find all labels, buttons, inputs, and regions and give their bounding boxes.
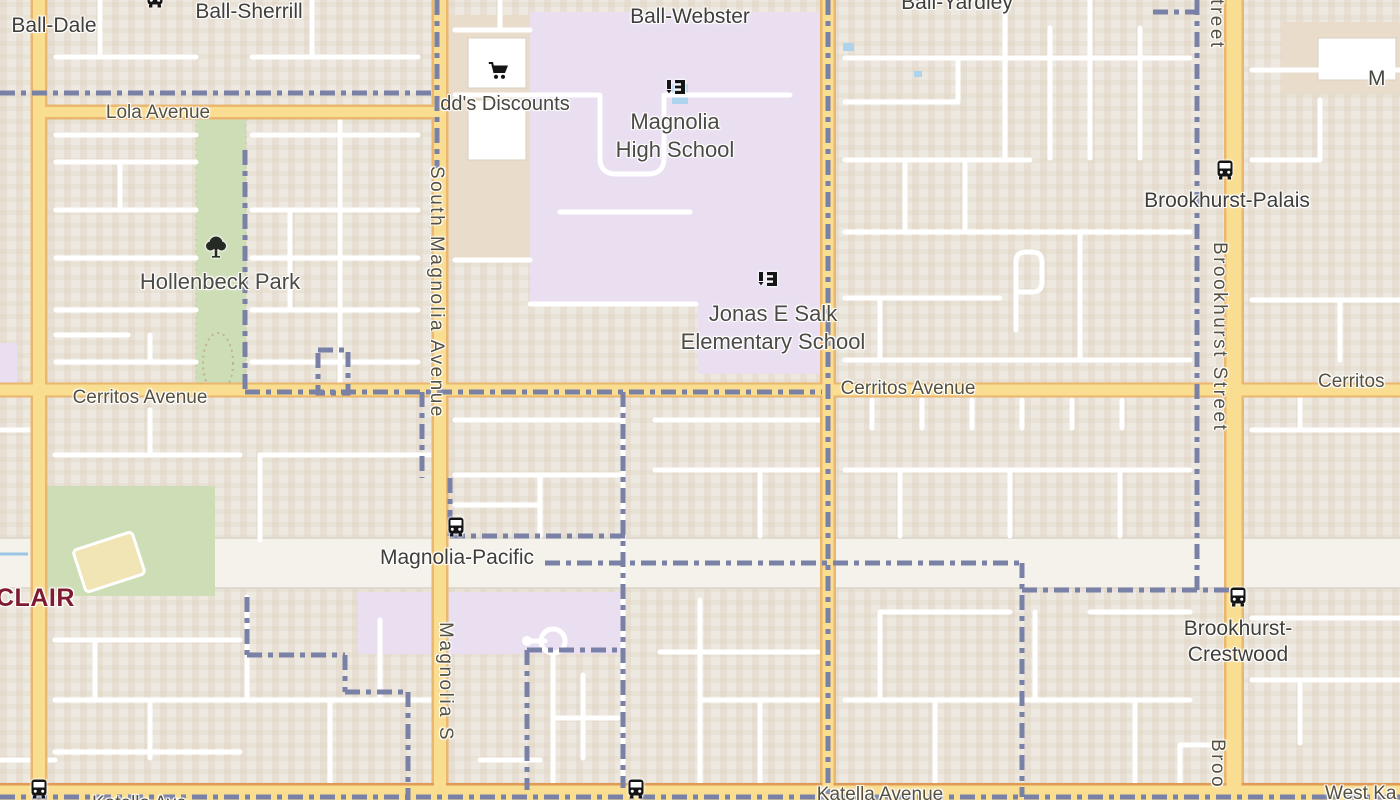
transit-label-line: Brookhurst- <box>1184 616 1293 642</box>
neighborhood-label-clair: CLAIR <box>0 583 75 614</box>
transit-stop-label-ball-dale: Ball-Dale <box>11 13 96 39</box>
transit-stop-label-brookhurst-palais: Brookhurst-Palais <box>1144 188 1310 214</box>
street-label-cerritos-avenue-center: Cerritos Avenue <box>841 377 976 401</box>
street-label-south-magnolia-avenue: South Magnolia Avenue <box>424 166 448 419</box>
poi-label-line: Jonas E Salk <box>681 300 866 328</box>
poi-label-dds-discounts: dd's Discounts <box>440 92 569 117</box>
poi-label-magnolia-high-school: Magnolia High School <box>616 108 735 163</box>
bus-stop-icon <box>30 779 48 800</box>
transit-stop-label-magnolia-pacific: Magnolia-Pacific <box>380 545 534 571</box>
poi-label-hollenbeck-park: Hollenbeck Park <box>140 268 300 296</box>
street-label-cerritos-avenue-east-clipped: Cerritos <box>1318 370 1385 394</box>
poi-label-line: High School <box>616 136 735 164</box>
place-label-m-clipped: M <box>1368 66 1386 92</box>
school-icon <box>666 80 686 101</box>
school-icon <box>758 272 778 293</box>
transit-stop-label-brookhurst-crestwood: Brookhurst- Crestwood <box>1184 616 1293 669</box>
bus-stop-icon <box>1229 587 1247 612</box>
tree-icon <box>204 235 228 268</box>
shopping-cart-icon <box>488 62 510 86</box>
transit-stop-label-ball-sherrill: Ball-Sherrill <box>195 0 302 25</box>
street-label-katella-avenue: Katella Avenue <box>817 783 943 800</box>
transit-label-line: Crestwood <box>1184 642 1293 668</box>
transit-stop-label-ball-webster: Ball-Webster <box>630 4 750 30</box>
street-label-brookhurst-street-top-clipped: Street <box>1204 0 1228 50</box>
street-label-magnolia-street-clipped: Magnolia S <box>433 622 457 742</box>
street-label-cerritos-avenue-west: Cerritos Avenue <box>73 386 208 410</box>
street-label-west-katella-clipped: West Ka <box>1325 782 1396 800</box>
bus-stop-icon <box>627 779 645 800</box>
street-label-lola-avenue: Lola Avenue <box>106 101 210 125</box>
poi-label-jonas-e-salk-elementary: Jonas E Salk Elementary School <box>681 300 866 355</box>
bus-stop-icon <box>146 0 164 13</box>
street-label-brookhurst-street-bottom-clipped: Broo <box>1205 739 1229 789</box>
bus-stop-icon <box>447 517 465 542</box>
poi-label-line: Magnolia <box>616 108 735 136</box>
poi-label-line: Elementary School <box>681 328 866 356</box>
street-label-brookhurst-street: Brookhurst Street <box>1207 242 1231 432</box>
street-label-katella-avenue-clipped: Katella Ave <box>92 792 187 800</box>
transit-stop-label-ball-yardley: Ball-Yardley <box>901 0 1013 16</box>
map-canvas[interactable]: Ball-Dale Ball-Sherrill Ball-Webster Bal… <box>0 0 1400 800</box>
bus-stop-icon <box>1216 160 1234 185</box>
